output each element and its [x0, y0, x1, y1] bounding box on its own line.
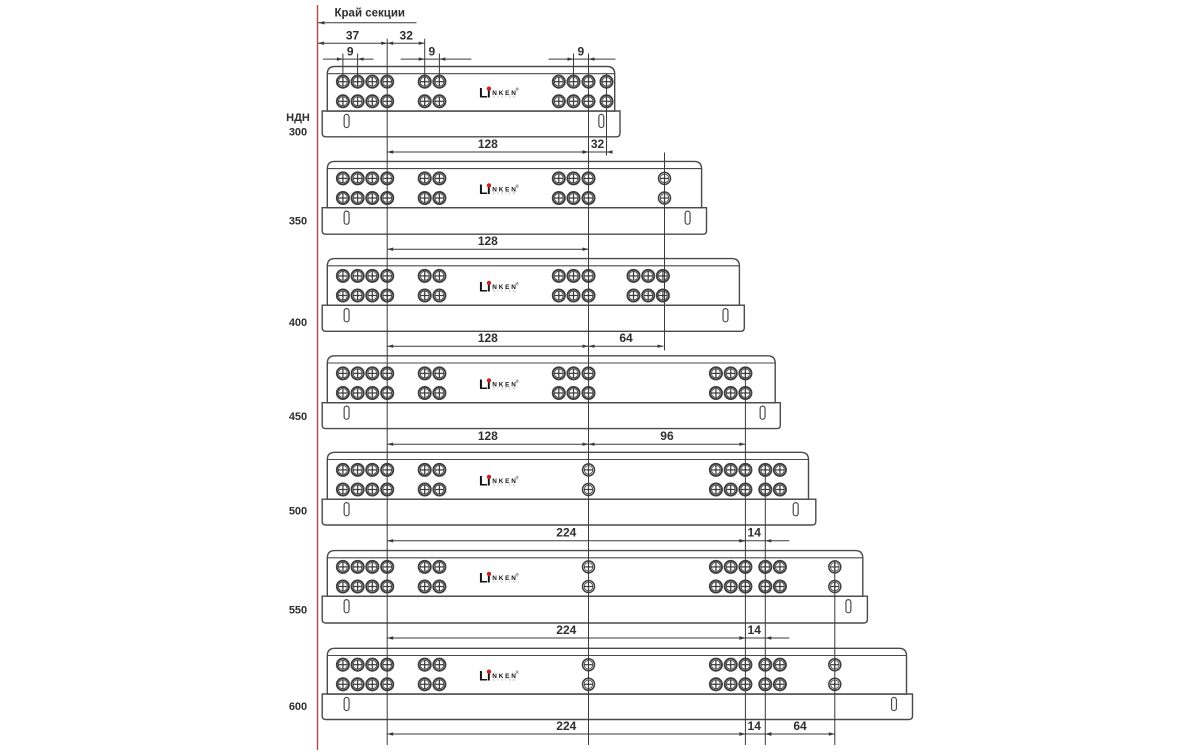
svg-text:450: 450 — [289, 411, 307, 423]
svg-text:9: 9 — [347, 44, 354, 58]
svg-text:32: 32 — [400, 29, 414, 43]
svg-text:SYSTEM: SYSTEM — [493, 580, 517, 584]
svg-text:224: 224 — [556, 719, 576, 733]
svg-text:64: 64 — [619, 331, 633, 345]
svg-text:14: 14 — [748, 623, 762, 637]
svg-text:224: 224 — [556, 526, 576, 540]
svg-text:37: 37 — [346, 29, 360, 43]
svg-text:14: 14 — [748, 719, 762, 733]
svg-text:SYSTEM: SYSTEM — [493, 678, 517, 682]
svg-text:400: 400 — [289, 317, 307, 329]
svg-text:96: 96 — [660, 429, 674, 443]
svg-text:128: 128 — [478, 429, 498, 443]
svg-text:128: 128 — [478, 331, 498, 345]
svg-text:32: 32 — [591, 137, 605, 151]
svg-text:128: 128 — [478, 137, 498, 151]
svg-text:SYSTEM: SYSTEM — [493, 192, 517, 196]
svg-text:НДН: НДН — [286, 112, 310, 124]
svg-text:350: 350 — [289, 215, 307, 227]
svg-text:224: 224 — [556, 623, 576, 637]
svg-text:500: 500 — [289, 506, 307, 518]
svg-text:9: 9 — [429, 44, 436, 58]
svg-text:SYSTEM: SYSTEM — [493, 95, 517, 99]
svg-text:550: 550 — [289, 604, 307, 616]
svg-text:600: 600 — [289, 701, 307, 713]
svg-text:14: 14 — [748, 526, 762, 540]
svg-text:SYSTEM: SYSTEM — [493, 483, 517, 487]
svg-text:64: 64 — [793, 719, 807, 733]
svg-text:9: 9 — [578, 44, 585, 58]
svg-text:128: 128 — [478, 234, 498, 248]
svg-text:SYSTEM: SYSTEM — [493, 289, 517, 293]
svg-text:SYSTEM: SYSTEM — [493, 387, 517, 391]
svg-text:300: 300 — [289, 126, 307, 138]
svg-text:Край секции: Край секции — [335, 7, 405, 19]
